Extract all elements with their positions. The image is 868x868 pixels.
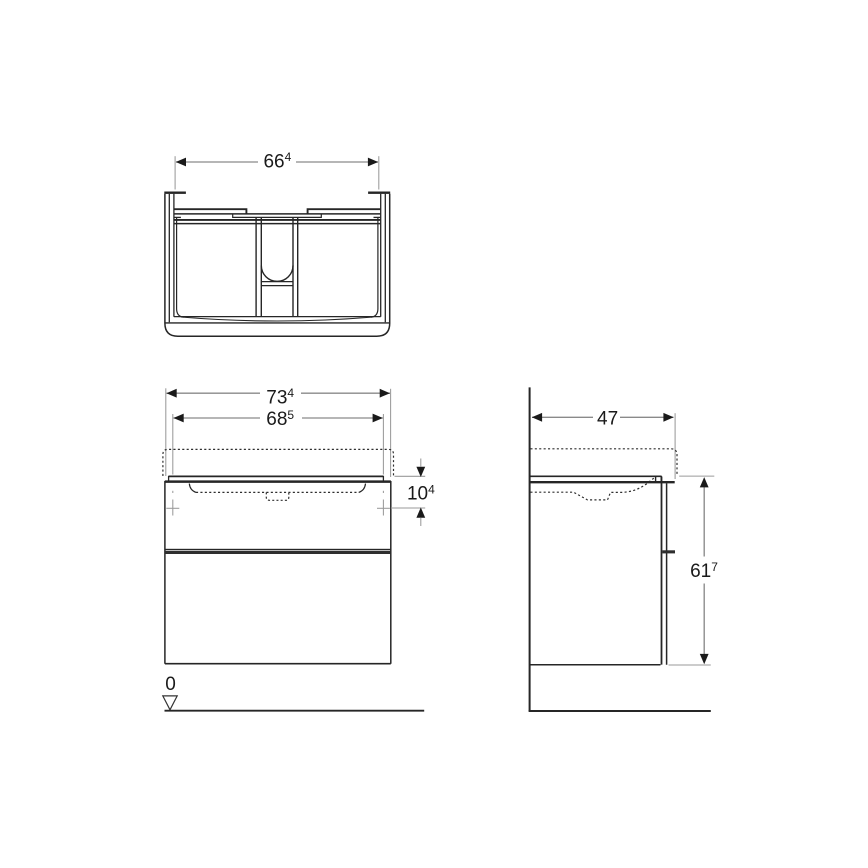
svg-text:47: 47 (597, 408, 618, 429)
svg-text:0: 0 (165, 674, 176, 695)
